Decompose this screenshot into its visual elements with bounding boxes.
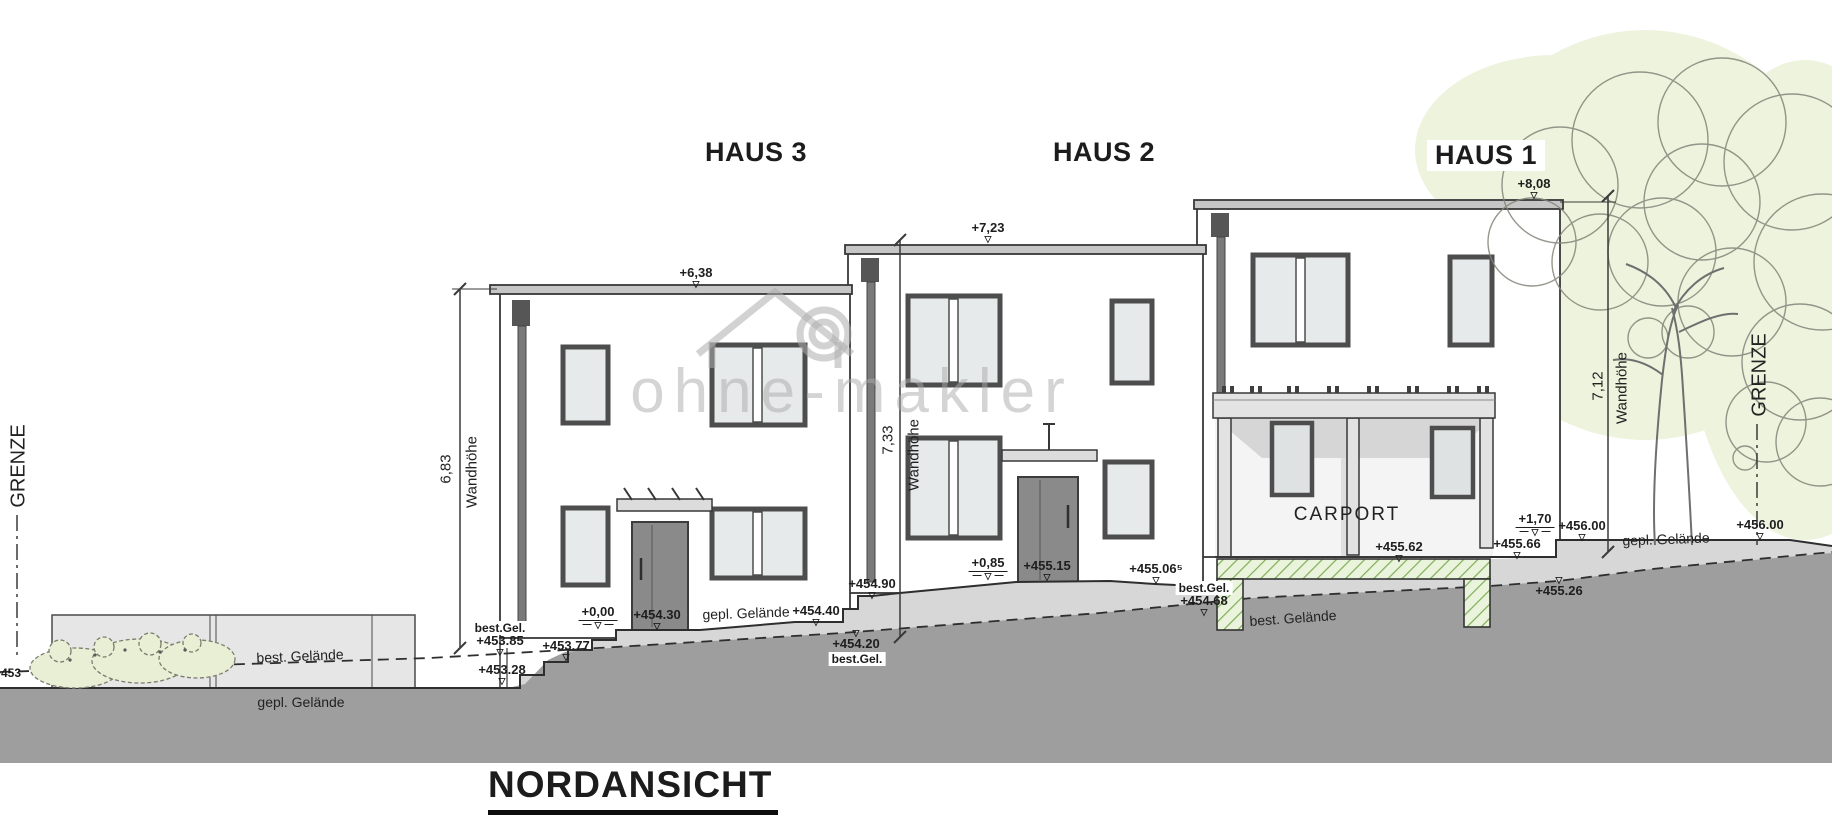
level-label-456-00: +456.00 ▽ xyxy=(1558,519,1605,541)
foundation-slab xyxy=(1217,559,1490,579)
boundary-label-left: GRENZE xyxy=(8,424,31,507)
haus2-dim-value: 7,33 xyxy=(880,425,897,454)
watermark-text: ohne-makler xyxy=(630,356,1074,427)
carport-window-left xyxy=(1272,423,1312,495)
level-label-455-06: +455.06⁵ ▽ xyxy=(1129,562,1182,584)
level-marker-icon: ▽ xyxy=(499,677,506,685)
haus2-roof-slab xyxy=(845,245,1206,254)
level-label-455-66: +455.66 ▽ xyxy=(1493,537,1540,559)
level-marker-icon: ▽ xyxy=(563,653,570,661)
best-gel-label-haus2: best.Gel. xyxy=(829,652,886,666)
level-label-453-77: +453.77 ▽ xyxy=(542,639,589,661)
level-label-456-00-right: +456.00 ▽ xyxy=(1736,518,1783,540)
elevation-sheet: HAUS 3 HAUS 2 HAUS 1 NORDANSICHT CARPORT… xyxy=(0,0,1832,830)
level-marker-icon: ▽ xyxy=(813,618,820,626)
level-label-453-28: +453.28 ▽ xyxy=(478,663,525,685)
level-label-haus2-zero: +0,85 ▽ xyxy=(969,556,1008,580)
carport-window-right xyxy=(1432,428,1473,497)
foundation-leg-right xyxy=(1464,579,1490,627)
haus3-dim-label: Wandhöhe xyxy=(464,436,481,508)
haus1-roof-slab xyxy=(1194,200,1563,209)
level-label-454-40: +454.40 ▽ xyxy=(792,604,839,626)
boundary-label-right: GRENZE xyxy=(1749,333,1772,416)
level-marker-icon: ▽ xyxy=(595,621,602,629)
carport-post-middle xyxy=(1347,418,1359,555)
level-label-455-62: +455.62 ▽ xyxy=(1375,540,1422,562)
drawing-title: NORDANSICHT xyxy=(488,764,778,815)
haus3-label: HAUS 3 xyxy=(705,137,807,168)
carport-roof-beam xyxy=(1213,393,1495,418)
level-label-haus3-zero: +0,00 ▽ xyxy=(579,605,618,629)
haus1-label: HAUS 1 xyxy=(1427,140,1545,171)
level-marker-icon: ▽ xyxy=(985,235,992,243)
level-marker-icon: ▽ xyxy=(1531,191,1538,199)
level-marker-icon: ▽ xyxy=(1579,533,1586,541)
carport-post-left xyxy=(1218,418,1231,557)
level-marker-icon: ▽ xyxy=(1757,532,1764,540)
carport-label: CARPORT xyxy=(1294,504,1401,526)
haus1-dim-value: 7,12 xyxy=(1590,371,1607,400)
level-marker-icon: ▽ xyxy=(497,648,504,656)
level-label-haus1-roof: +8,08 ▽ xyxy=(1518,177,1551,199)
level-marker-icon: ▽ xyxy=(693,280,700,288)
level-marker-icon: ▽ xyxy=(1044,573,1051,581)
level-label-453-partial: +453 xyxy=(0,666,21,680)
level-marker-icon: ▽ xyxy=(1201,608,1208,616)
gepl-gelaende-label-left: gepl. Gelände xyxy=(257,694,344,710)
level-label-haus2-roof: +7,23 ▽ xyxy=(972,221,1005,243)
haus1-window-upper-right xyxy=(1450,257,1492,345)
haus3-roof-slab xyxy=(490,285,852,294)
level-label-454-20: +454.20 ▽ xyxy=(832,629,879,651)
haus2-label: HAUS 2 xyxy=(1053,137,1155,168)
haus2-dim-label: Wandhöhe xyxy=(906,419,923,491)
level-label-454-90: +454.90 ▽ xyxy=(848,577,895,599)
level-marker-icon: ▽ xyxy=(1153,576,1160,584)
gepl-gelaende-label-right: gepl. Gelände xyxy=(1622,529,1710,548)
haus3-dim-value: 6,83 xyxy=(438,454,455,483)
haus1-dim-label: Wandhöhe xyxy=(1614,352,1631,424)
haus3-window-lower-right xyxy=(712,509,805,578)
carport-post-right xyxy=(1480,418,1493,548)
haus3-window-lower-left xyxy=(563,508,608,585)
haus2-window-upper-right xyxy=(1112,301,1152,383)
level-marker-icon: ▽ xyxy=(1396,554,1403,562)
level-label-454-68: +454.68 ▽ xyxy=(1180,594,1227,616)
level-marker-icon: ▽ xyxy=(654,622,661,630)
level-label-haus2-entry: +455.15 ▽ xyxy=(1023,559,1070,581)
gepl-gelaende-label-mid: gepl. Gelände xyxy=(702,603,790,622)
haus1-window-upper-left xyxy=(1253,255,1348,345)
level-marker-icon: ▽ xyxy=(985,572,992,580)
level-label-haus3-entry: +454.30 ▽ xyxy=(633,608,680,630)
level-label-455-26: +455.26 ▽ xyxy=(1535,576,1582,598)
level-label-haus3-roof: +6,38 ▽ xyxy=(680,266,713,288)
haus2-window-lower-right xyxy=(1105,462,1152,537)
level-marker-icon: ▽ xyxy=(869,591,876,599)
level-marker-icon: ▽ xyxy=(1514,551,1521,559)
level-label-1-70: +1,70 ▽ xyxy=(1516,512,1555,536)
level-label-453-85: +453.85 ▽ xyxy=(476,634,523,656)
level-marker-icon: ▽ xyxy=(1532,528,1539,536)
haus3-window-upper-left xyxy=(563,347,608,423)
